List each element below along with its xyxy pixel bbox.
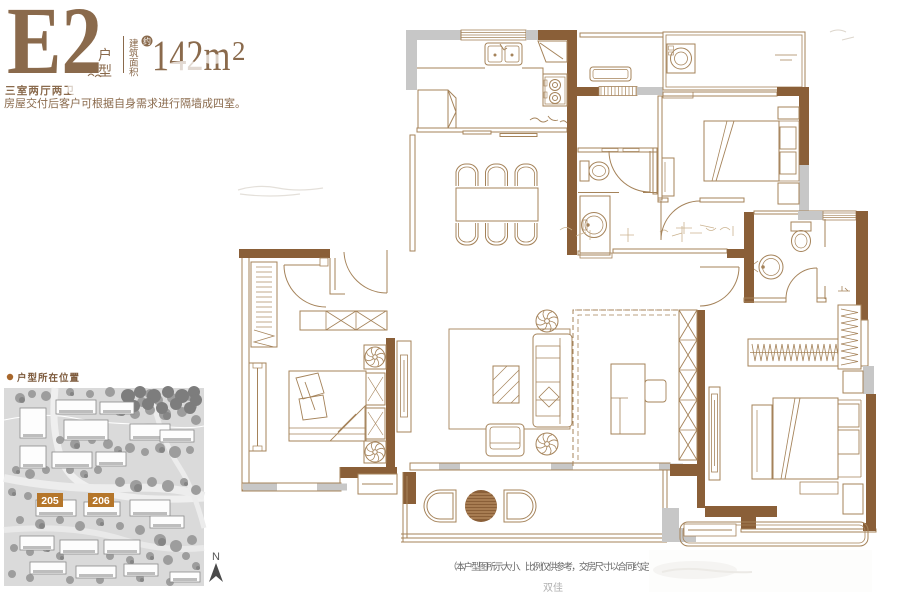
svg-text:205: 205	[41, 495, 59, 507]
svg-text:206: 206	[92, 495, 110, 507]
svg-text:房屋交付后客户可根据自身需求进行隔墙成四室。: 房屋交付后客户可根据自身需求进行隔墙成四室。	[4, 96, 246, 110]
svg-text:约: 约	[143, 36, 151, 46]
svg-text:户型所在位置: 户型所在位置	[16, 372, 80, 384]
svg-text:（本户型图所示大小、比例仅供参考，交房尺寸以合同约定为准: （本户型图所示大小、比例仅供参考，交房尺寸以合同约定为准	[448, 561, 666, 573]
svg-text:2: 2	[232, 36, 246, 66]
svg-text:户: 户	[98, 47, 112, 63]
svg-text:N: N	[212, 551, 220, 563]
svg-text:双佳: 双佳	[543, 581, 563, 594]
svg-text:三室两厅两卫: 三室两厅两卫	[5, 84, 75, 97]
svg-text:积: 积	[129, 67, 139, 79]
svg-text:E2: E2	[7, 0, 102, 95]
